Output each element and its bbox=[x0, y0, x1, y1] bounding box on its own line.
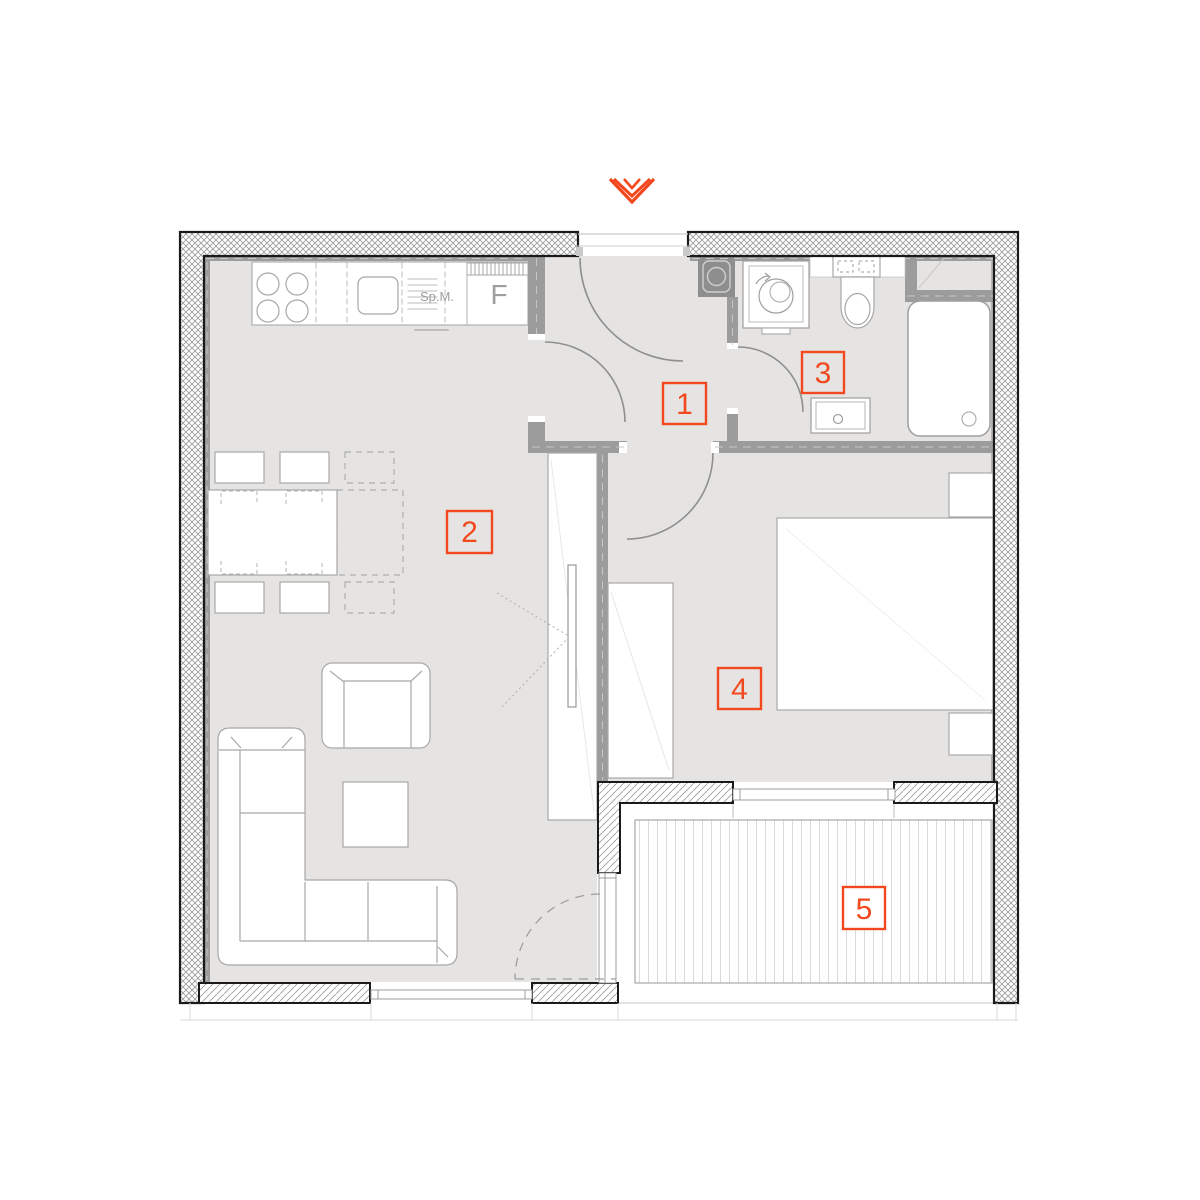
dining-table bbox=[208, 490, 337, 575]
site-lines bbox=[180, 1003, 1018, 1020]
room-number: 4 bbox=[731, 673, 748, 706]
triple-chevron-down-icon bbox=[610, 179, 654, 202]
entry-opening bbox=[576, 234, 690, 256]
wall-bath-south bbox=[713, 441, 995, 453]
chair bbox=[280, 452, 329, 483]
fridge-label: F bbox=[490, 279, 507, 310]
dishwasher-label: Sp.M. bbox=[420, 289, 454, 304]
room-number: 5 bbox=[856, 893, 873, 926]
nightstand bbox=[949, 713, 993, 755]
washing-machine-icon bbox=[743, 261, 809, 334]
floor-plan: Sp.M. F bbox=[0, 0, 1200, 1200]
coffee-table bbox=[343, 782, 408, 847]
chair bbox=[215, 582, 264, 613]
entry-jamb bbox=[576, 247, 583, 256]
floor-plan-page: Sp.M. F bbox=[0, 0, 1200, 1200]
balcony bbox=[597, 782, 997, 1003]
balcony-door bbox=[599, 873, 616, 983]
room-number: 3 bbox=[815, 357, 832, 390]
room-label-5: 5 bbox=[843, 887, 885, 929]
wall-south bbox=[199, 983, 370, 1003]
kitchen-counter: Sp.M. F bbox=[252, 262, 528, 330]
room-number: 2 bbox=[461, 516, 478, 549]
nightstand bbox=[949, 473, 993, 517]
window-bedroom bbox=[733, 789, 895, 800]
window-living bbox=[371, 990, 532, 999]
wall-south bbox=[532, 983, 618, 1003]
chair bbox=[280, 582, 329, 613]
kitchen-sink-icon bbox=[358, 277, 398, 314]
wall-kitchen-hall bbox=[528, 256, 545, 338]
balcony-decking bbox=[635, 820, 992, 983]
washbasin-icon bbox=[811, 398, 870, 433]
armchair bbox=[322, 663, 430, 748]
entry-jamb bbox=[683, 247, 690, 256]
chair bbox=[215, 452, 264, 483]
room-number: 1 bbox=[676, 388, 693, 421]
ventilation-shaft-icon bbox=[698, 256, 735, 297]
tv-icon bbox=[568, 565, 576, 707]
wall-balcony-right bbox=[894, 782, 997, 803]
bathtub-icon bbox=[908, 301, 990, 436]
